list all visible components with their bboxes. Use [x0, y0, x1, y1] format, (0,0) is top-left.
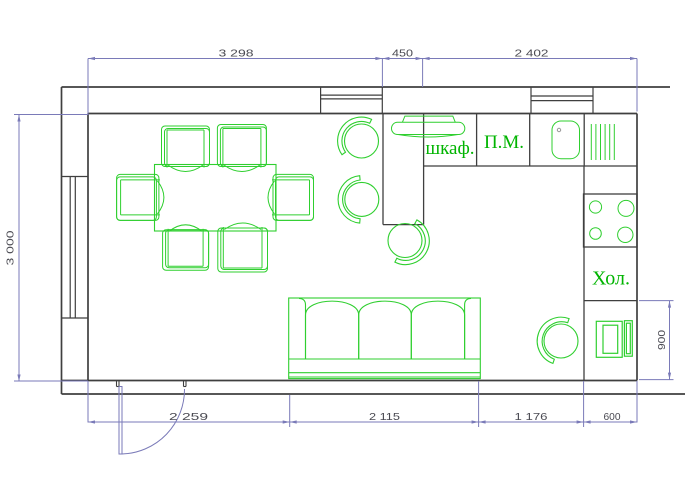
svg-text:Хол.: Хол.	[592, 268, 630, 290]
svg-text:3 000: 3 000	[6, 230, 17, 265]
svg-text:2 115: 2 115	[369, 412, 400, 423]
svg-text:3 298: 3 298	[219, 49, 254, 60]
svg-text:2 259: 2 259	[169, 412, 209, 423]
svg-text:1 176: 1 176	[515, 412, 548, 423]
svg-text:450: 450	[392, 49, 413, 60]
svg-text:900: 900	[657, 330, 668, 350]
svg-text:2 402: 2 402	[515, 49, 549, 60]
svg-text:П.М.: П.М.	[484, 132, 524, 153]
svg-text:шкаф.: шкаф.	[425, 138, 474, 159]
svg-text:600: 600	[604, 412, 621, 423]
